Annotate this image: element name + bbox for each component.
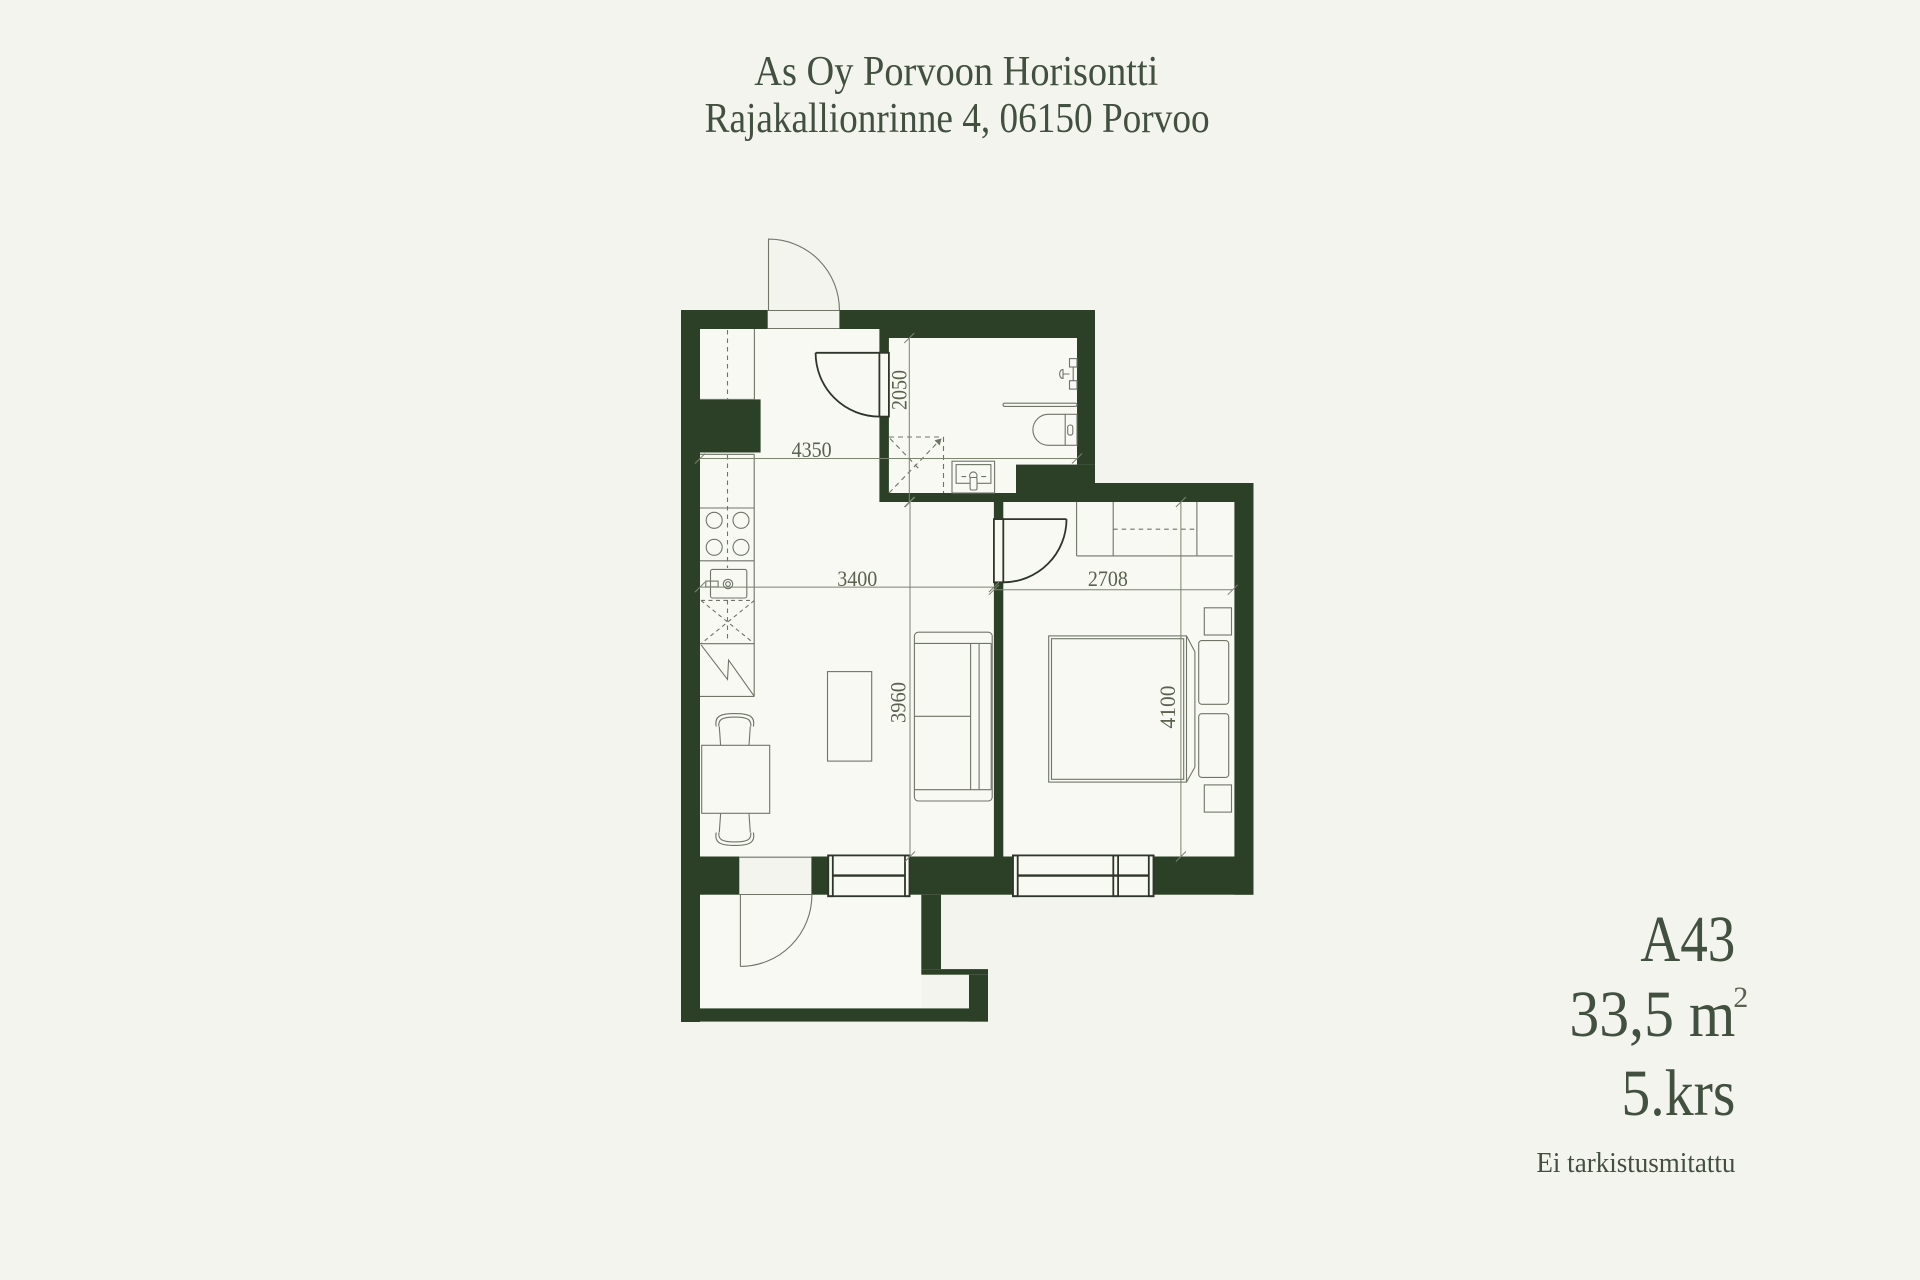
svg-text:33,5 m: 33,5 m (1569, 978, 1735, 1051)
svg-text:Rajakallionrinne 4, 06150 Porv: Rajakallionrinne 4, 06150 Porvoo (705, 96, 1210, 142)
svg-text:As Oy Porvoon Horisontti: As Oy Porvoon Horisontti (754, 49, 1158, 95)
svg-text:5.krs: 5.krs (1621, 1057, 1735, 1130)
svg-text:2050: 2050 (887, 370, 912, 410)
svg-text:A43: A43 (1640, 903, 1735, 976)
svg-text:2708: 2708 (1088, 566, 1128, 591)
svg-text:3400: 3400 (837, 566, 877, 591)
svg-text:2: 2 (1733, 981, 1748, 1014)
svg-text:Ei tarkistusmitattu: Ei tarkistusmitattu (1536, 1148, 1735, 1179)
svg-text:3960: 3960 (885, 682, 910, 723)
svg-text:4100: 4100 (1155, 686, 1180, 729)
svg-text:4350: 4350 (792, 437, 832, 462)
